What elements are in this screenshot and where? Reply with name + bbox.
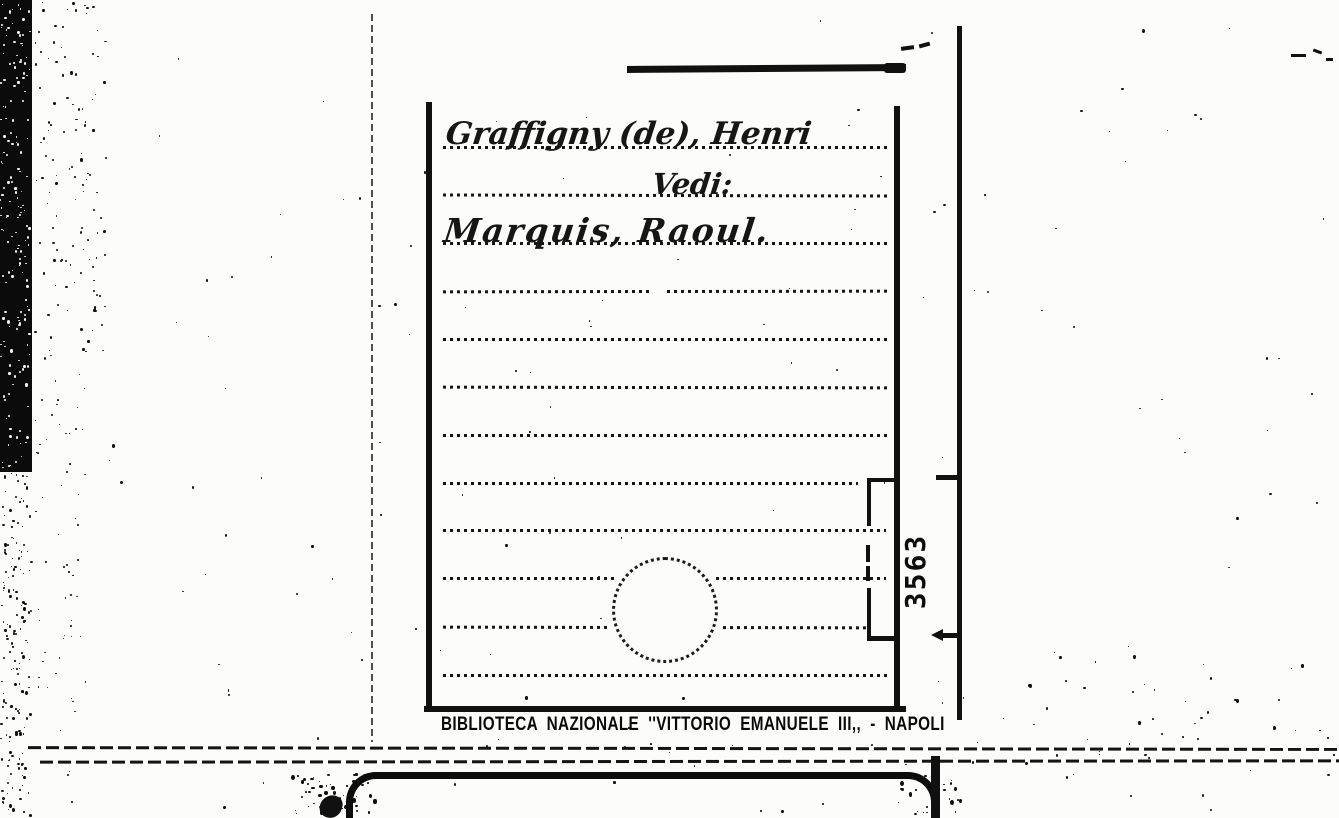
card-border-bottom xyxy=(424,706,906,712)
next-card-right-edge xyxy=(931,756,940,818)
bracket-dash xyxy=(866,545,870,562)
bracket-stem xyxy=(867,478,871,526)
separator-line xyxy=(40,759,1339,763)
margin-arrowhead-icon xyxy=(931,629,943,641)
card-border-left xyxy=(426,102,432,712)
scan-left-edge xyxy=(0,0,32,472)
see-reference: Marquis, Raoul. xyxy=(442,211,773,250)
bracket-arm-bottom xyxy=(867,636,895,641)
margin-line xyxy=(957,26,962,720)
dotted-rule xyxy=(443,434,890,437)
next-card-edge xyxy=(346,772,938,818)
ink-blob xyxy=(317,793,344,818)
bracket-arm-top xyxy=(867,478,894,482)
bracket-dash xyxy=(866,566,870,581)
cross-reference-label: Vedi: xyxy=(650,167,734,201)
margin-tick-top xyxy=(936,475,958,480)
library-stamp: BIBLIOTECA NAZIONALE ''VITTORIO EMANUELE… xyxy=(441,713,945,735)
separator-line xyxy=(28,746,1339,751)
card-heading: Graffigny (de), Henri xyxy=(444,116,814,152)
page-fold-line xyxy=(371,14,373,742)
hole-punch-circle xyxy=(612,557,718,663)
shelf-number: 3563 xyxy=(898,524,934,618)
dotted-rule xyxy=(443,482,858,485)
margin-arrow-shaft xyxy=(943,633,958,638)
scan-page: Graffigny (de), Henri Vedi: Marquis, Rao… xyxy=(0,0,1339,818)
card-top-bar xyxy=(627,64,906,73)
stray-mark xyxy=(1291,54,1306,57)
stray-mark xyxy=(1313,49,1322,55)
stray-mark xyxy=(919,42,931,49)
card-top-bar-cap xyxy=(884,63,906,73)
dotted-rule xyxy=(443,674,890,677)
stray-mark xyxy=(1326,58,1333,61)
stray-mark xyxy=(901,45,914,51)
dotted-rule xyxy=(443,529,886,532)
card-border-right xyxy=(894,106,900,712)
dotted-rule xyxy=(443,386,890,390)
shelf-number-text: 3563 xyxy=(900,533,933,608)
dotted-rule xyxy=(443,338,890,341)
bracket-stem xyxy=(867,588,871,638)
rule-gap xyxy=(651,286,667,296)
